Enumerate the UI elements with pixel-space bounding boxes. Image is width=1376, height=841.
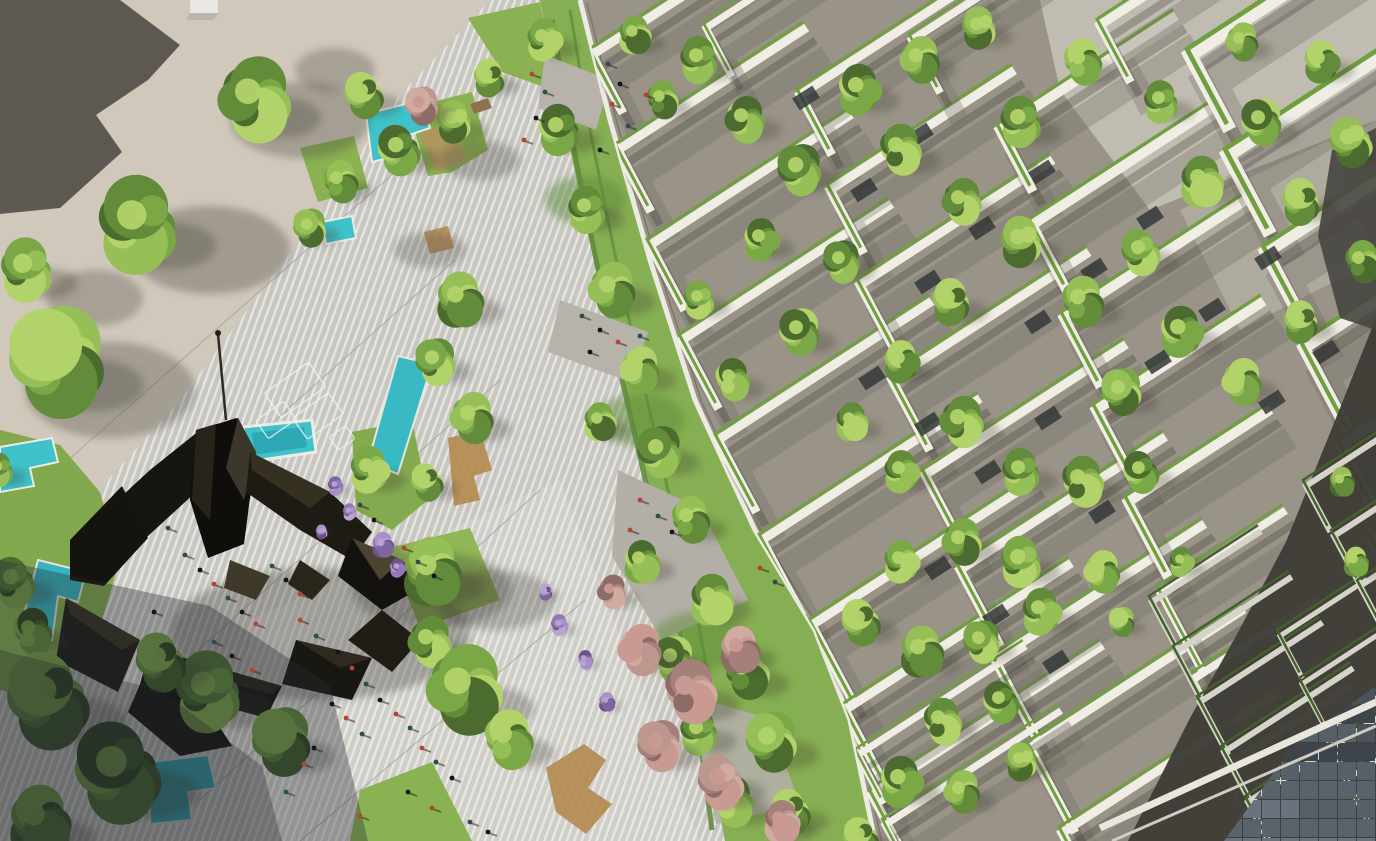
person xyxy=(420,746,425,751)
tree-canopy-highlight xyxy=(951,190,965,204)
tree-canopy-highlight xyxy=(931,710,945,724)
person xyxy=(212,640,217,645)
person xyxy=(656,514,661,519)
canopy-shadow xyxy=(394,232,466,268)
person xyxy=(254,622,259,627)
tree-canopy-highlight xyxy=(1349,554,1358,563)
person xyxy=(360,732,365,737)
tree-canopy-highlight xyxy=(729,638,743,652)
mosaic-tile xyxy=(1338,781,1356,799)
tree-canopy-highlight xyxy=(1115,614,1124,623)
tree-canopy-highlight xyxy=(1231,370,1245,384)
mosaic-tile xyxy=(1357,819,1375,837)
tree-canopy-highlight xyxy=(941,290,955,304)
person xyxy=(434,760,439,765)
tree-canopy-highlight xyxy=(330,171,343,184)
tree-canopy-highlight xyxy=(1152,91,1165,104)
tree-canopy-highlight xyxy=(419,472,431,484)
tree-canopy-highlight xyxy=(700,587,715,602)
tree-canopy-highlight xyxy=(1335,474,1344,483)
mosaic-tile xyxy=(1281,819,1299,837)
mosaic-tile xyxy=(1357,762,1375,780)
tree-canopy xyxy=(329,182,343,196)
person xyxy=(543,90,548,95)
tree-canopy-highlight xyxy=(577,198,591,212)
tree-canopy-highlight xyxy=(346,508,351,513)
tree-canopy-highlight xyxy=(235,78,261,104)
tree-canopy-highlight xyxy=(628,637,643,652)
tree-canopy-highlight xyxy=(772,811,785,824)
tree-canopy-highlight xyxy=(418,629,433,644)
mosaic-tile xyxy=(1281,781,1299,799)
tree-canopy-highlight xyxy=(1010,549,1025,564)
tree-canopy-highlight xyxy=(447,286,464,303)
person xyxy=(610,102,615,107)
tree-canopy xyxy=(1069,482,1085,498)
person xyxy=(302,762,307,767)
tree-canopy xyxy=(580,660,586,666)
mosaic-tile xyxy=(1319,800,1337,818)
tree-canopy-highlight xyxy=(354,83,368,97)
tree-canopy-highlight xyxy=(972,631,985,644)
mosaic-tile xyxy=(1262,819,1280,837)
person xyxy=(598,328,603,333)
tree-canopy-highlight xyxy=(1175,554,1184,563)
tree-canopy-highlight xyxy=(950,409,965,424)
tree-canopy-highlight xyxy=(626,25,638,37)
tree-canopy-highlight xyxy=(1010,229,1025,244)
person xyxy=(616,340,621,345)
tree-canopy-highlight xyxy=(1291,190,1305,204)
person xyxy=(638,334,643,339)
person xyxy=(416,560,421,565)
tree-canopy xyxy=(1070,62,1085,77)
tree-canopy-highlight xyxy=(629,358,643,372)
tree-canopy-highlight xyxy=(1233,32,1245,44)
person xyxy=(468,820,473,825)
tree-canopy-highlight xyxy=(952,781,965,794)
tree-canopy-highlight xyxy=(951,530,965,544)
tree-canopy-highlight xyxy=(689,48,703,62)
tree-canopy xyxy=(678,520,693,535)
person xyxy=(406,790,411,795)
tree-canopy-highlight xyxy=(1013,752,1025,764)
tree-canopy-highlight xyxy=(1312,51,1325,64)
mosaic-tile xyxy=(1357,800,1375,818)
tree-canopy-highlight xyxy=(604,583,614,593)
person xyxy=(606,62,611,67)
person xyxy=(230,654,235,659)
person xyxy=(198,568,203,573)
tree-canopy-highlight xyxy=(548,117,563,132)
tree-canopy-highlight xyxy=(832,251,845,264)
tree-canopy-highlight xyxy=(603,697,609,703)
tree-canopy-highlight xyxy=(789,320,803,334)
person xyxy=(350,666,355,671)
tree-canopy-highlight xyxy=(1132,461,1145,474)
person xyxy=(336,650,341,655)
tree-canopy-highlight xyxy=(890,769,905,784)
tree-canopy-highlight xyxy=(1251,110,1265,124)
tree-canopy-highlight xyxy=(1071,50,1085,64)
tree-canopy-highlight xyxy=(1092,561,1105,574)
tree-canopy-highlight xyxy=(444,667,471,694)
person xyxy=(534,116,539,121)
tree-canopy-highlight xyxy=(599,276,616,293)
tree-canopy-highlight xyxy=(377,539,385,547)
tree-canopy-highlight xyxy=(675,676,694,695)
tree-canopy-highlight xyxy=(13,254,32,273)
person xyxy=(638,498,643,503)
tree-canopy-highlight xyxy=(892,461,905,474)
kiosk-roof xyxy=(190,0,218,13)
person xyxy=(344,716,349,721)
person xyxy=(166,526,171,531)
aerial-rendering xyxy=(0,0,1376,841)
light-pole-head xyxy=(215,330,221,336)
tree-canopy-highlight xyxy=(843,412,855,424)
mosaic-tile xyxy=(1243,819,1261,837)
tree-canopy-highlight xyxy=(413,96,425,108)
tree-canopy-highlight xyxy=(359,458,373,472)
tree-canopy-highlight xyxy=(1031,600,1045,614)
person xyxy=(312,746,317,751)
person xyxy=(298,618,303,623)
tree-canopy-highlight xyxy=(888,137,903,152)
person xyxy=(408,726,413,731)
mosaic-tile xyxy=(1300,819,1318,837)
tree-canopy xyxy=(887,150,903,166)
person xyxy=(628,528,633,533)
tree-canopy-highlight xyxy=(425,350,439,364)
tree-canopy-highlight xyxy=(848,77,863,92)
person xyxy=(402,546,407,551)
tree-canopy-highlight xyxy=(632,551,645,564)
tree-canopy xyxy=(1069,302,1085,318)
tree-canopy-highlight xyxy=(752,229,765,242)
tree-canopy-highlight xyxy=(909,48,923,62)
tree-canopy-highlight xyxy=(1010,109,1025,124)
aerial-rendering-stage xyxy=(0,0,1376,841)
person xyxy=(284,578,289,583)
tree-canopy-highlight xyxy=(734,108,748,122)
tree-canopy-highlight xyxy=(460,405,475,420)
person xyxy=(522,138,527,143)
mosaic-tile xyxy=(1338,743,1356,761)
person xyxy=(330,702,335,707)
tree-canopy-highlight xyxy=(388,137,403,152)
person xyxy=(394,712,399,717)
mosaic-tile xyxy=(1281,800,1299,818)
person xyxy=(486,830,491,835)
person xyxy=(626,124,631,129)
tree-canopy-highlight xyxy=(555,620,561,626)
tree-canopy-highlight xyxy=(535,29,548,42)
tree-canopy-highlight xyxy=(851,610,865,624)
tree-canopy-highlight xyxy=(1131,240,1145,254)
tree-canopy-highlight xyxy=(1190,169,1205,184)
tree-canopy-highlight xyxy=(648,733,663,748)
tree-canopy-highlight xyxy=(691,290,703,302)
tree-canopy xyxy=(930,722,945,737)
canopy-shadow xyxy=(440,140,520,180)
tree-canopy-highlight xyxy=(788,157,803,172)
tree-canopy-highlight xyxy=(591,412,603,424)
person xyxy=(183,553,188,558)
person xyxy=(298,592,303,597)
tree-canopy-highlight xyxy=(581,655,587,661)
tree-canopy-highlight xyxy=(1292,311,1305,324)
tree-canopy xyxy=(492,740,511,759)
tree-canopy-highlight xyxy=(32,334,65,367)
mosaic-tile xyxy=(1338,819,1356,837)
tree-canopy-highlight xyxy=(709,768,726,785)
person xyxy=(432,574,437,579)
tree-canopy-highlight xyxy=(494,725,512,743)
mosaic-tile xyxy=(1300,762,1318,780)
person xyxy=(773,580,778,585)
person xyxy=(644,93,649,98)
tree-canopy xyxy=(732,672,750,690)
tree-canopy-highlight xyxy=(648,439,663,454)
person xyxy=(670,530,675,535)
person xyxy=(226,596,231,601)
mosaic-tile xyxy=(1338,800,1356,818)
person xyxy=(364,682,369,687)
tree-canopy-highlight xyxy=(394,563,400,569)
tree-canopy xyxy=(1351,262,1365,276)
tree-canopy-highlight xyxy=(1352,251,1365,264)
mosaic-tile xyxy=(1300,781,1318,799)
mosaic-tile xyxy=(1357,781,1375,799)
tree-canopy-highlight xyxy=(892,351,905,364)
kiosk-side xyxy=(186,13,218,20)
person xyxy=(580,314,585,319)
tree-canopy-highlight xyxy=(117,200,146,229)
tree-canopy-highlight xyxy=(1340,129,1355,144)
mosaic-tile xyxy=(1338,762,1356,780)
tree-canopy-highlight xyxy=(892,551,905,564)
person xyxy=(430,806,435,811)
tree-canopy-highlight xyxy=(542,588,547,593)
person xyxy=(598,148,603,153)
person xyxy=(530,72,535,77)
tree-canopy-highlight xyxy=(481,68,493,80)
tree-canopy-highlight xyxy=(992,691,1005,704)
tree-canopy-highlight xyxy=(301,218,313,230)
tree-canopy xyxy=(721,380,735,394)
tree-canopy-highlight xyxy=(722,369,735,382)
person xyxy=(212,582,217,587)
person xyxy=(618,82,623,87)
person xyxy=(270,564,275,569)
tree-canopy-highlight xyxy=(319,528,323,532)
tree-canopy-highlight xyxy=(1070,469,1085,484)
person xyxy=(314,634,319,639)
person xyxy=(284,790,289,795)
tree-canopy-highlight xyxy=(1111,380,1125,394)
tree-canopy xyxy=(652,100,664,112)
mosaic-tile xyxy=(1319,819,1337,837)
tree-canopy xyxy=(673,692,693,712)
tree-canopy-highlight xyxy=(653,90,665,102)
person xyxy=(378,698,383,703)
person xyxy=(358,814,363,819)
person xyxy=(372,518,377,523)
person xyxy=(152,610,157,615)
mosaic-tile xyxy=(1262,800,1280,818)
tree-canopy-highlight xyxy=(332,481,338,487)
person xyxy=(588,350,593,355)
person xyxy=(250,668,255,673)
person xyxy=(758,566,763,571)
person xyxy=(358,503,363,508)
mosaic-tile xyxy=(1319,762,1337,780)
person xyxy=(240,610,245,615)
mosaic-tile xyxy=(1319,781,1337,799)
tree-canopy-highlight xyxy=(1011,460,1025,474)
mosaic-tile xyxy=(1357,743,1375,761)
tree-canopy-highlight xyxy=(1170,319,1185,334)
tree-canopy-highlight xyxy=(910,639,925,654)
tree-canopy-highlight xyxy=(852,827,865,840)
tree-canopy-highlight xyxy=(1070,289,1085,304)
tree-canopy-highlight xyxy=(758,727,776,745)
tree-canopy-highlight xyxy=(679,508,693,522)
person xyxy=(450,776,455,781)
mosaic-tile xyxy=(1300,800,1318,818)
tree-canopy-highlight xyxy=(970,17,983,30)
